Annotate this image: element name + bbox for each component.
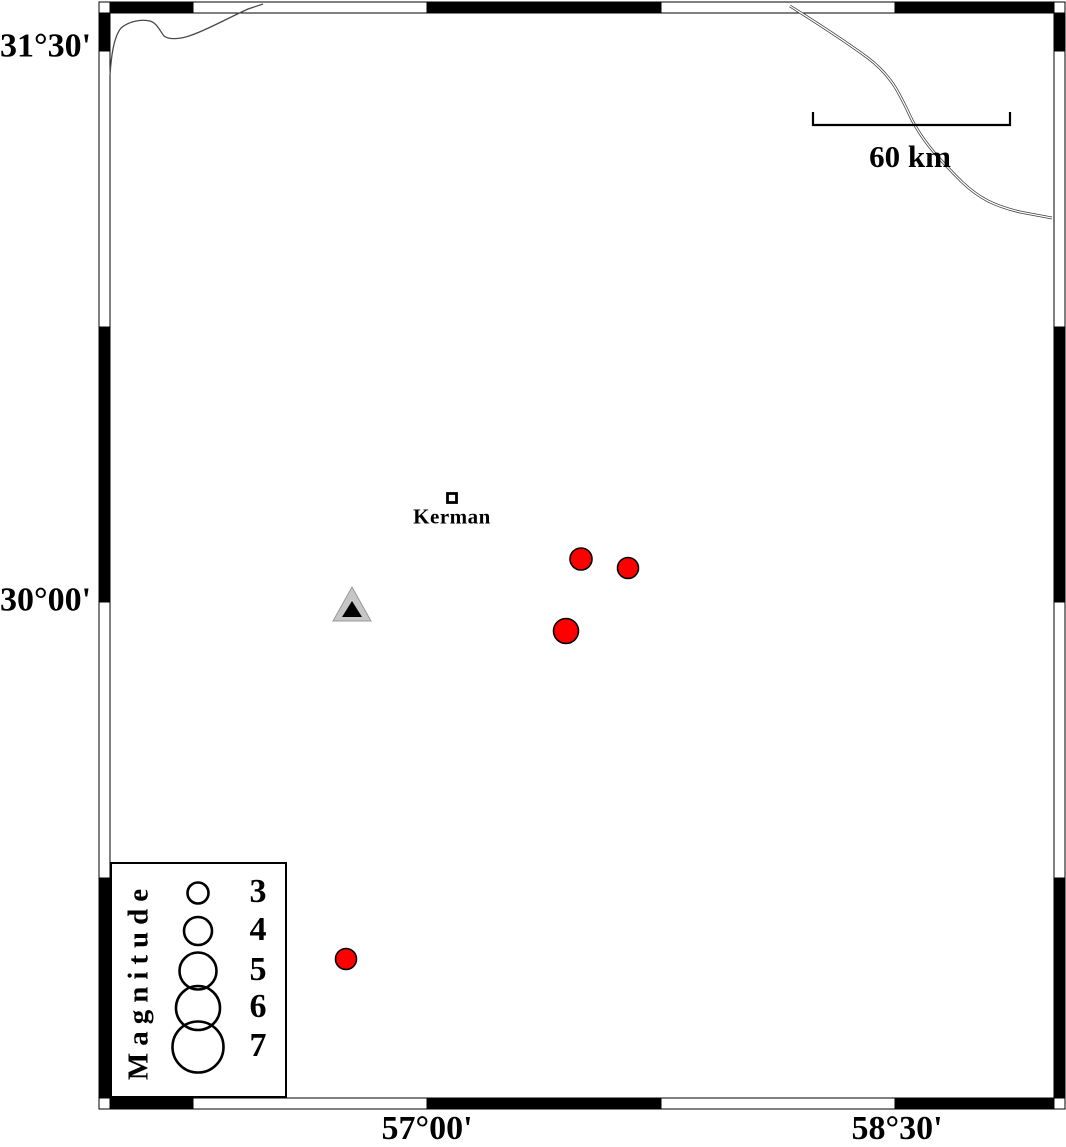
legend-circle <box>176 986 220 1030</box>
frame-segment <box>99 51 110 327</box>
lon-label-57-00: 57°00' <box>381 1110 472 1147</box>
frame-segment <box>427 1098 661 1109</box>
frame-segment <box>1054 1098 1065 1109</box>
legend-circle <box>188 883 209 904</box>
frame-segment <box>99 602 110 878</box>
city-square-marker <box>448 494 457 503</box>
legend-magnitude-circles <box>173 883 224 1073</box>
frame-segment <box>895 2 1054 13</box>
lat-label-31-30: 31°30' <box>0 27 88 65</box>
legend-value-6: 6 <box>250 988 267 1026</box>
frame-segment <box>661 2 895 13</box>
frame-segment <box>193 2 427 13</box>
legend-title: Magnitude <box>123 882 156 1080</box>
frame-segment <box>1054 878 1065 1098</box>
earthquake-markers <box>336 548 639 970</box>
frame-segment <box>895 1098 1054 1109</box>
frame-segment <box>427 2 661 13</box>
city-label: Kerman <box>413 505 491 530</box>
scale-bar-label: 60 km <box>869 139 951 175</box>
legend-circle <box>184 917 212 945</box>
map-figure: 31°30' 30°00' 57°00' 58°30' 60 km Kerman… <box>0 0 1066 1147</box>
legend-circle <box>180 953 217 990</box>
frame-segment <box>99 13 110 51</box>
earthquake-marker <box>618 558 639 579</box>
legend-value-4: 4 <box>250 911 267 949</box>
frame-segment <box>1054 2 1065 13</box>
frame-segment <box>99 327 110 602</box>
lon-label-58-30: 58°30' <box>851 1110 942 1147</box>
legend-value-7: 7 <box>250 1027 267 1065</box>
station-triangle-marker <box>333 587 371 621</box>
frame-segment <box>193 1098 427 1109</box>
legend-value-3: 3 <box>250 873 267 911</box>
frame-segment <box>99 878 110 1098</box>
river-line <box>110 4 263 75</box>
frame-segment <box>661 1098 895 1109</box>
frame-segment <box>1054 602 1065 878</box>
frame-segment <box>99 1098 110 1109</box>
lat-label-30-00: 30°00' <box>0 581 88 619</box>
earthquake-marker <box>336 949 357 970</box>
frame-segment <box>1054 51 1065 327</box>
legend-value-5: 5 <box>250 951 267 989</box>
road-line <box>790 6 1052 218</box>
earthquake-marker <box>554 619 579 644</box>
frame-segment <box>110 2 193 13</box>
frame-segment <box>1054 13 1065 51</box>
frame-segment <box>110 1098 193 1109</box>
frame-segment <box>1054 327 1065 602</box>
earthquake-marker <box>570 548 592 570</box>
frame-segment <box>99 2 110 13</box>
